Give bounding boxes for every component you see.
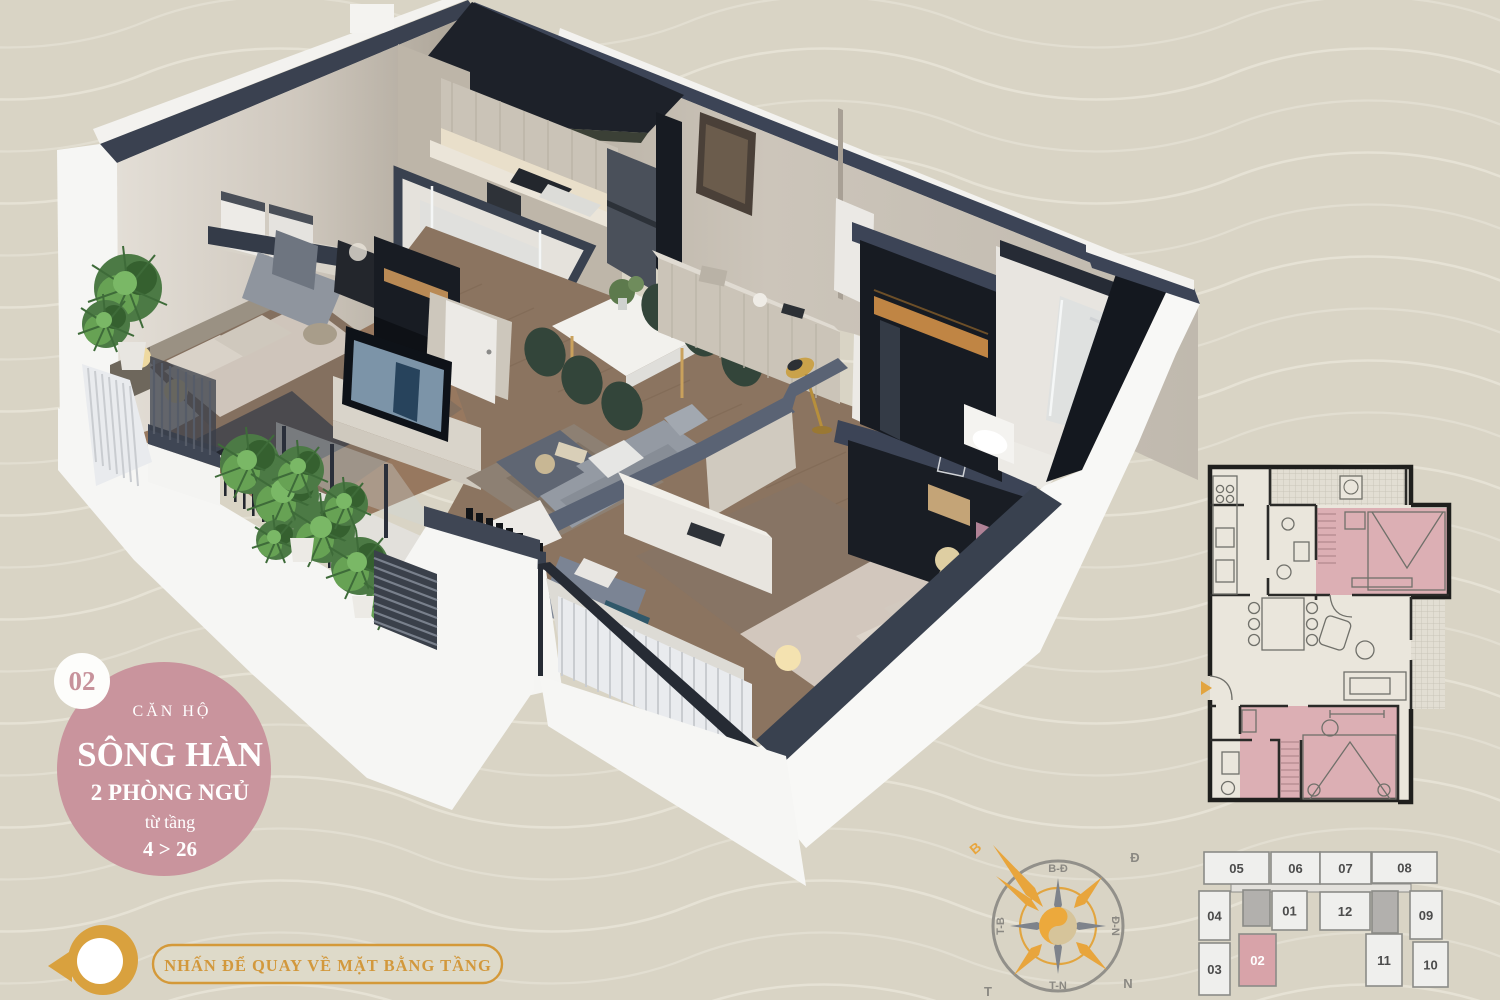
svg-text:02: 02 [1250,953,1264,968]
svg-text:SÔNG HÀN: SÔNG HÀN [77,734,263,774]
svg-text:T-B: T-B [995,917,1007,935]
svg-text:Đ-N: Đ-N [1109,916,1121,936]
svg-text:11: 11 [1377,953,1391,968]
svg-text:05: 05 [1229,861,1243,876]
svg-text:4 > 26: 4 > 26 [143,837,197,861]
svg-text:10: 10 [1423,958,1437,973]
svg-text:2 PHÒNG NGỦ: 2 PHÒNG NGỦ [91,779,250,805]
svg-text:NHẤN ĐỂ QUAY VỀ MẶT BẰNG TẦNG: NHẤN ĐỂ QUAY VỀ MẶT BẰNG TẦNG [164,956,492,975]
svg-text:09: 09 [1419,908,1433,923]
svg-text:04: 04 [1207,909,1222,924]
svg-text:T-N: T-N [1049,980,1067,992]
svg-text:N: N [1123,976,1132,991]
svg-text:B-Đ: B-Đ [1048,863,1068,875]
svg-text:06: 06 [1288,861,1302,876]
svg-text:01: 01 [1282,904,1296,919]
svg-text:T: T [984,984,992,999]
svg-text:03: 03 [1207,962,1221,977]
svg-text:Đ: Đ [1130,850,1139,865]
svg-text:từ tầng: từ tầng [145,812,195,832]
svg-text:07: 07 [1338,861,1352,876]
svg-text:12: 12 [1338,904,1352,919]
svg-text:02: 02 [69,666,96,696]
svg-text:08: 08 [1397,861,1411,876]
svg-text:CĂN HỘ: CĂN HỘ [133,701,212,720]
